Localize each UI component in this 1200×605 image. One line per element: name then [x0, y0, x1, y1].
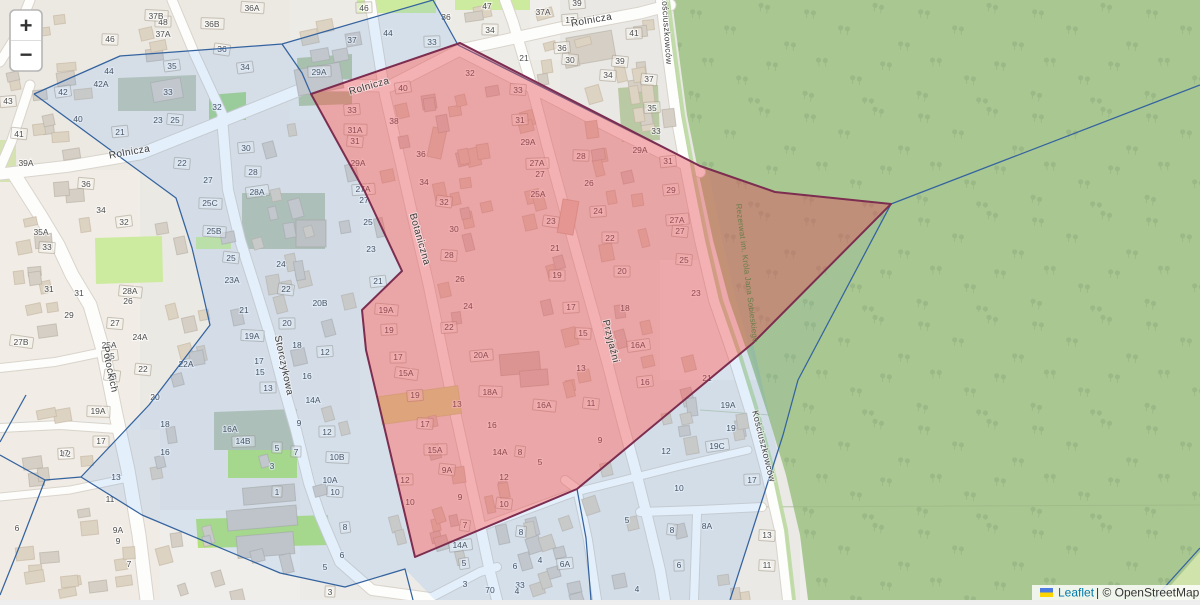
svg-text:7: 7 [127, 559, 132, 569]
svg-text:27B: 27B [13, 337, 28, 347]
svg-text:43: 43 [3, 96, 13, 106]
svg-text:39A: 39A [18, 158, 33, 168]
svg-text:46: 46 [105, 34, 115, 44]
svg-text:29: 29 [64, 310, 74, 320]
svg-text:32: 32 [119, 217, 129, 227]
svg-text:9A: 9A [113, 525, 124, 535]
svg-text:47: 47 [482, 1, 492, 11]
svg-text:37: 37 [644, 74, 654, 84]
svg-text:36A: 36A [244, 3, 259, 13]
svg-text:3: 3 [328, 587, 333, 597]
svg-text:9: 9 [116, 536, 121, 546]
svg-text:31: 31 [44, 284, 54, 294]
svg-text:13: 13 [762, 530, 772, 540]
svg-text:41: 41 [629, 28, 639, 38]
svg-text:36: 36 [557, 43, 567, 53]
svg-text:11: 11 [763, 560, 772, 570]
svg-text:6: 6 [15, 523, 20, 533]
svg-text:33: 33 [651, 126, 661, 136]
svg-text:28A: 28A [122, 286, 137, 296]
svg-text:37B: 37B [148, 11, 163, 21]
svg-text:34: 34 [96, 205, 106, 215]
svg-text:34: 34 [603, 70, 613, 80]
svg-text:37A: 37A [535, 7, 550, 17]
svg-text:| © OpenStreetMap: | © OpenStreetMap [1096, 586, 1200, 600]
svg-text:34: 34 [485, 25, 495, 35]
svg-text:36B: 36B [204, 19, 219, 29]
svg-text:22: 22 [138, 364, 148, 374]
svg-text:46: 46 [359, 3, 369, 13]
svg-text:33: 33 [42, 242, 52, 252]
svg-text:Leaflet: Leaflet [1058, 586, 1095, 600]
svg-text:35: 35 [647, 103, 657, 113]
svg-text:21: 21 [519, 53, 529, 63]
svg-text:36: 36 [81, 179, 91, 189]
svg-text:26: 26 [123, 296, 133, 306]
svg-text:+: + [20, 13, 33, 38]
svg-text:27: 27 [110, 318, 120, 328]
svg-text:39: 39 [615, 56, 625, 66]
svg-text:17: 17 [96, 436, 106, 446]
svg-text:39: 39 [572, 0, 582, 8]
svg-text:24A: 24A [132, 332, 147, 342]
svg-text:41: 41 [14, 129, 24, 139]
svg-text:19A: 19A [90, 406, 105, 416]
svg-text:35A: 35A [33, 227, 48, 237]
svg-text:31: 31 [74, 288, 84, 298]
svg-text:−: − [20, 42, 33, 67]
svg-text:30: 30 [565, 55, 575, 65]
svg-text:17: 17 [59, 448, 69, 458]
svg-text:37A: 37A [155, 29, 170, 39]
